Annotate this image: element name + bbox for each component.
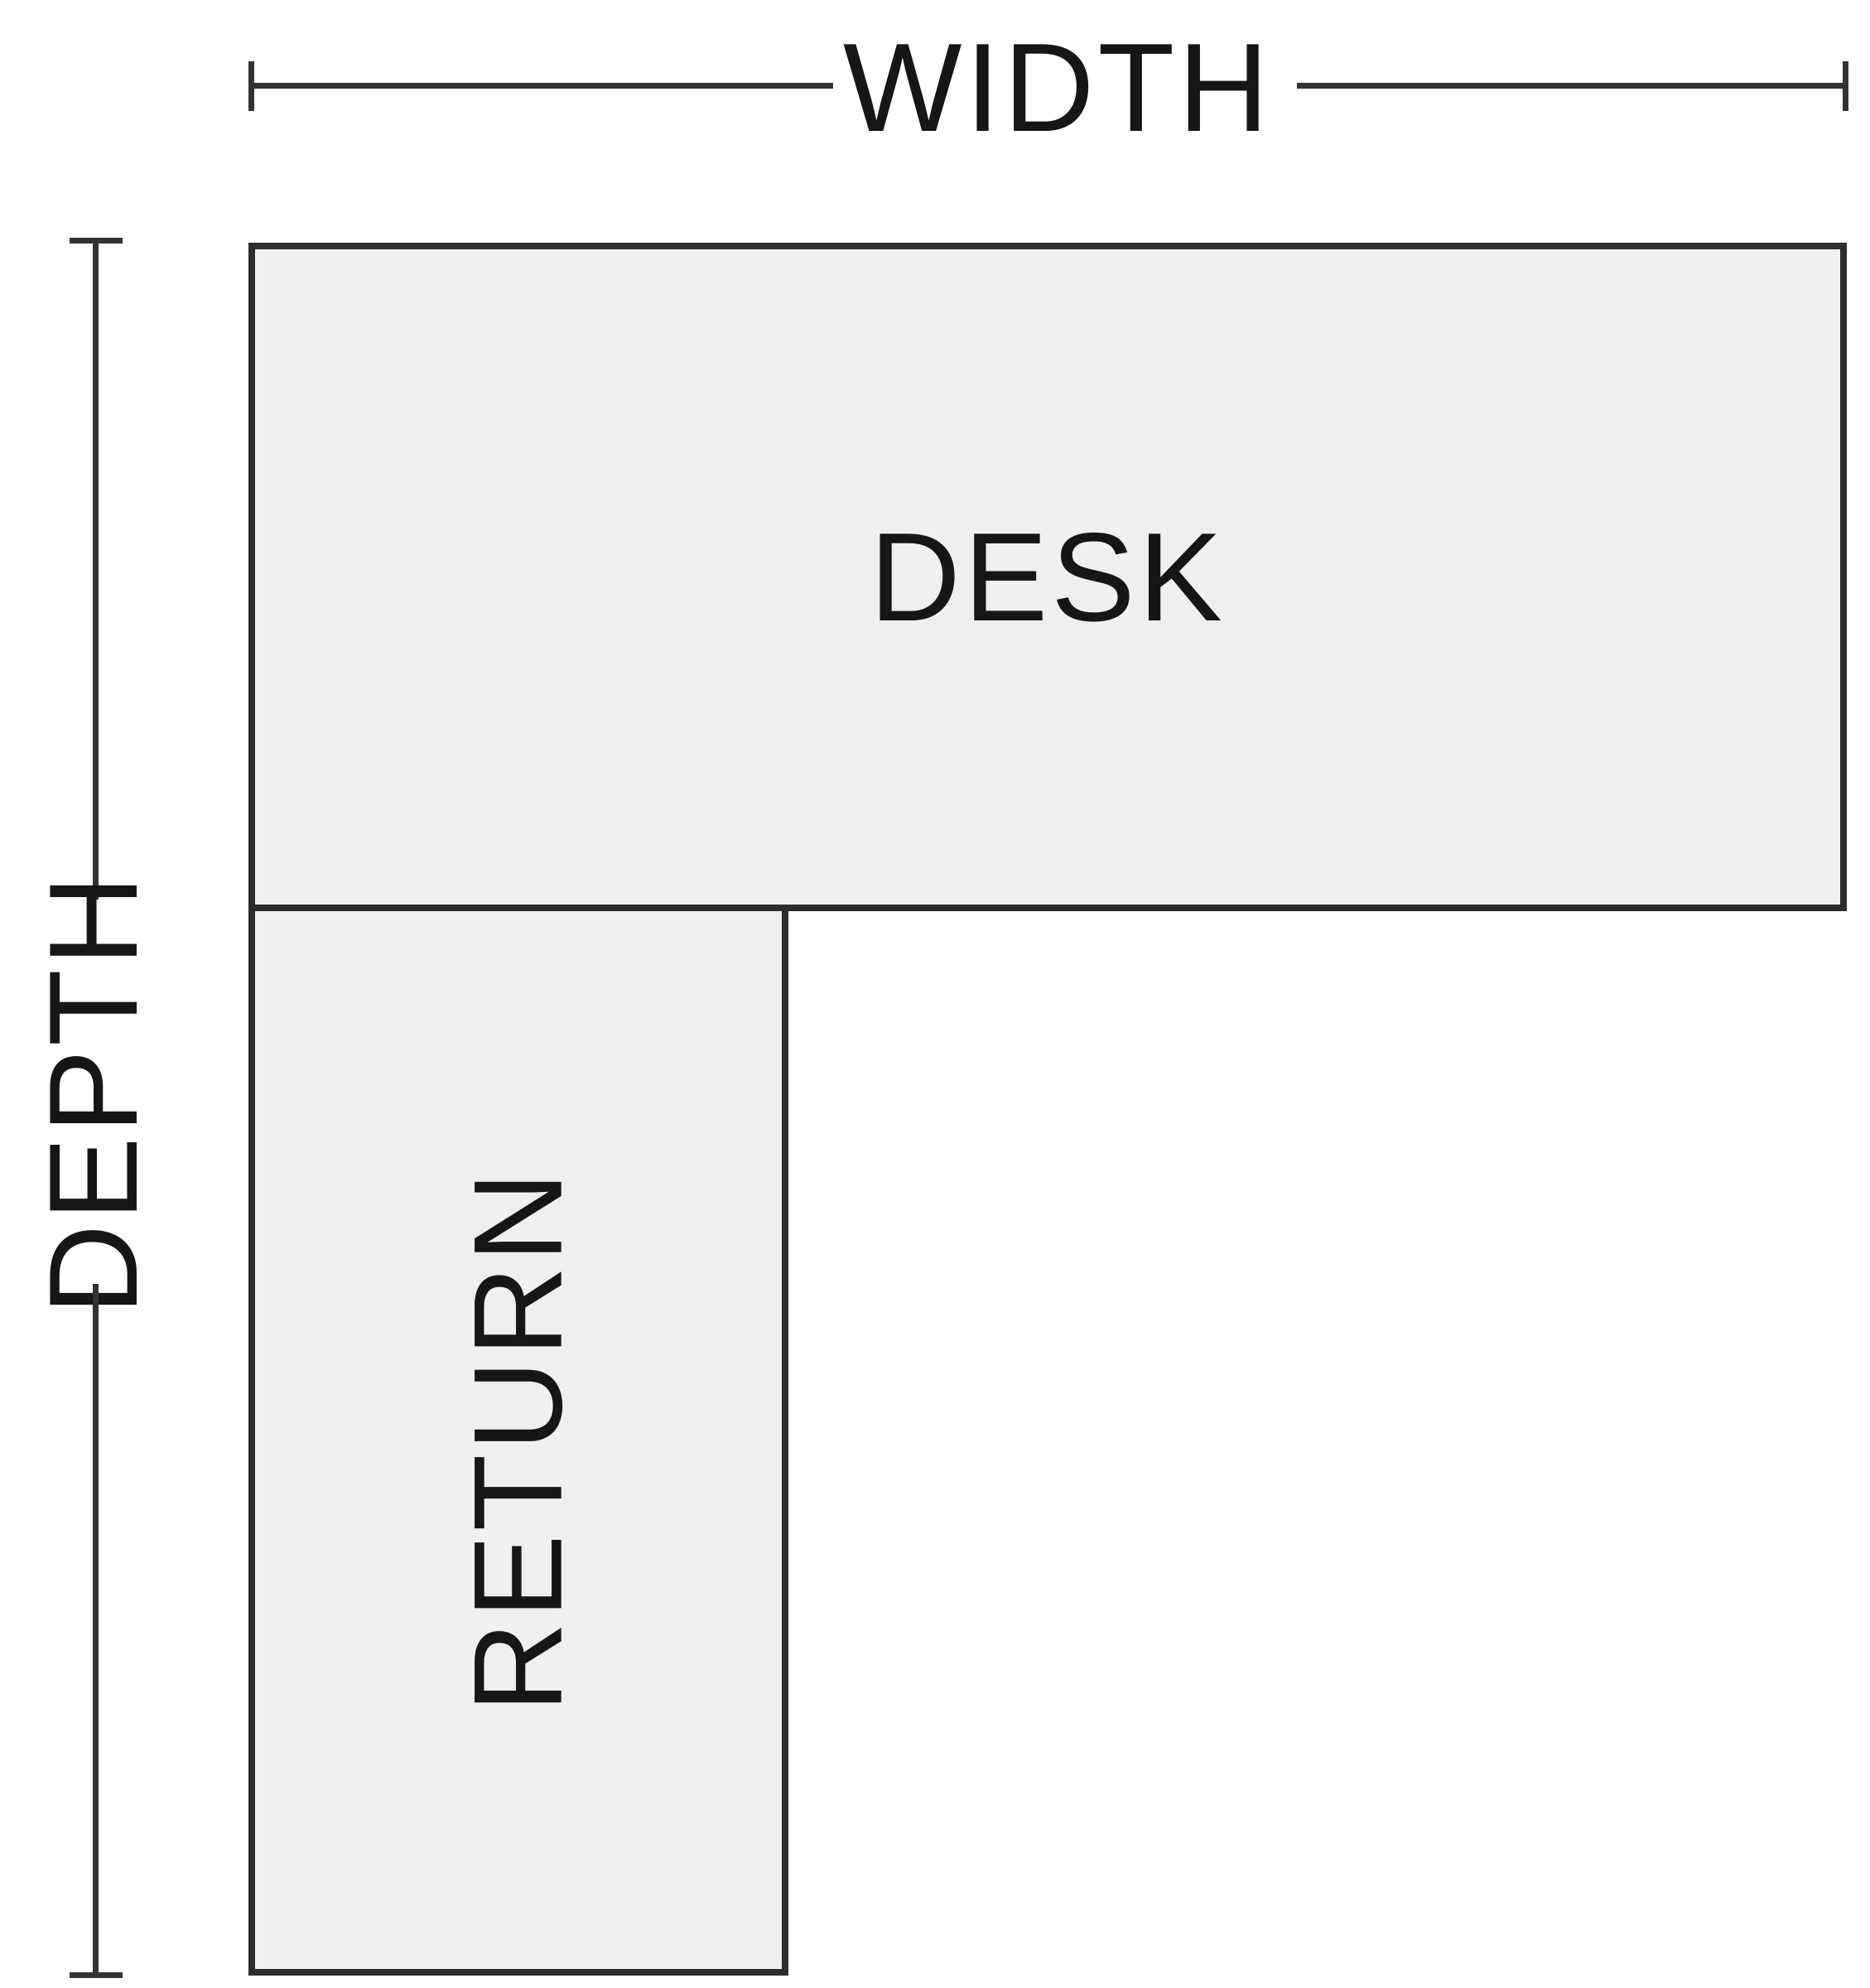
desk-surface: DESK <box>248 243 1847 911</box>
return-surface: RETURN <box>248 911 788 1976</box>
return-label: RETURN <box>455 1168 581 1712</box>
depth-dim-line-lower-segment <box>93 1284 99 1978</box>
depth-dim-bottom-tick <box>70 1972 123 1978</box>
depth-dimension-label: DEPTH <box>31 871 157 1315</box>
width-dim-right-tick <box>1843 61 1848 111</box>
width-dim-line-right-segment <box>1297 83 1848 89</box>
desk-dimension-diagram: WIDTH DEPTH DESK RETURN <box>0 0 1870 1988</box>
width-dimension-label: WIDTH <box>843 25 1272 151</box>
width-dim-line-left-segment <box>248 83 833 89</box>
depth-dim-line-upper-segment <box>93 240 99 900</box>
desk-label: DESK <box>870 514 1226 640</box>
